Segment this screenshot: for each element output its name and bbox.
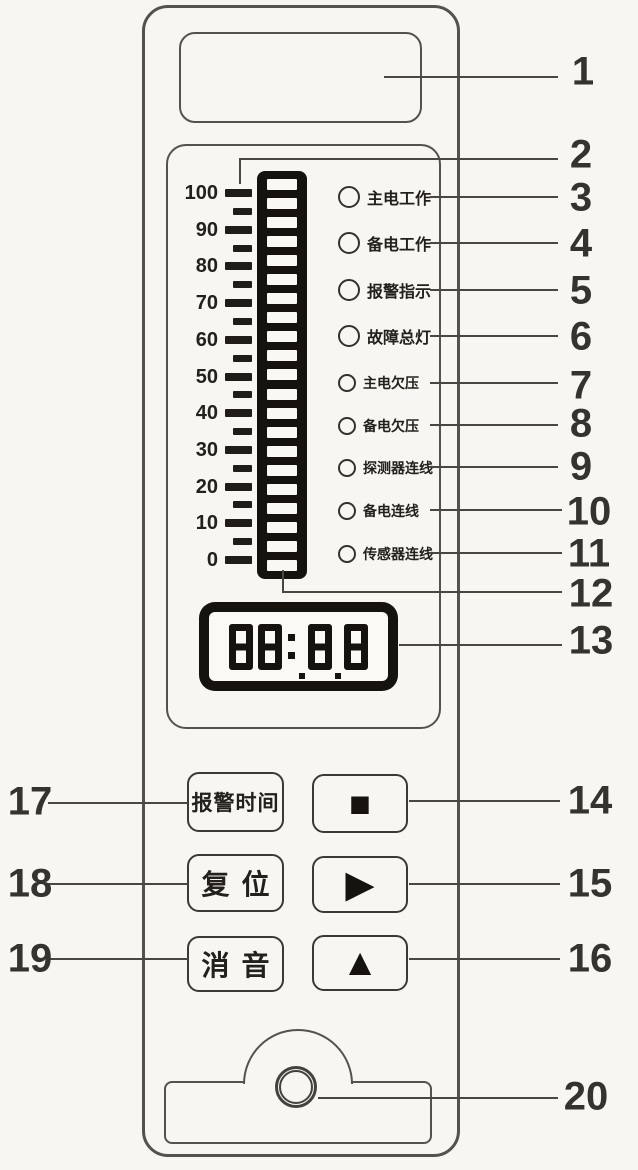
tick-major bbox=[225, 519, 252, 527]
callout-6: 6 bbox=[570, 315, 592, 360]
lamp-sensor-wiring: 传感器连线 bbox=[338, 541, 433, 567]
tick-minor bbox=[233, 501, 252, 508]
scale-label-80: 80 bbox=[170, 253, 218, 279]
tick-major bbox=[225, 409, 252, 417]
digit-8 bbox=[344, 624, 368, 670]
led-segment bbox=[267, 274, 297, 285]
led-segment bbox=[267, 389, 297, 400]
lamp-label: 主电欠压 bbox=[363, 373, 419, 393]
led-segment bbox=[267, 236, 297, 247]
tick-major bbox=[225, 446, 252, 454]
lamp-label: 故障总灯 bbox=[367, 324, 431, 348]
alarm-time-button[interactable]: 报警时间 bbox=[187, 772, 284, 832]
callout-11: 11 bbox=[568, 532, 610, 577]
colon-icon bbox=[287, 624, 296, 670]
tick-minor bbox=[233, 318, 252, 325]
lamp-circle-icon bbox=[338, 417, 356, 435]
digit-8 bbox=[308, 624, 332, 670]
scale-label-10: 10 bbox=[170, 510, 218, 536]
right-arrow-icon: ▶ bbox=[345, 862, 374, 907]
led-bargraph-segments bbox=[267, 179, 297, 571]
tick-major bbox=[225, 226, 252, 234]
lamp-circle-icon bbox=[338, 502, 356, 520]
led-segment bbox=[267, 179, 297, 190]
scale-label-60: 60 bbox=[170, 327, 218, 353]
led-segment bbox=[267, 522, 297, 533]
right-arrow-button[interactable]: ▶ bbox=[312, 856, 408, 913]
callout-13: 13 bbox=[569, 619, 614, 664]
tick-minor bbox=[233, 245, 252, 252]
up-arrow-button[interactable]: ▲ bbox=[312, 935, 408, 991]
nameplate-window bbox=[179, 32, 422, 123]
tick-minor bbox=[233, 428, 252, 435]
display-digits: 88:88 bbox=[209, 612, 388, 681]
lamp-label: 备电工作 bbox=[367, 231, 431, 255]
lamp-main-power: 主电工作 bbox=[338, 184, 431, 210]
led-segment bbox=[267, 350, 297, 361]
scale-label-20: 20 bbox=[170, 474, 218, 500]
led-segment bbox=[267, 503, 297, 514]
scale-label-40: 40 bbox=[170, 400, 218, 426]
led-segment bbox=[267, 541, 297, 552]
callout-2: 2 bbox=[570, 133, 592, 178]
callout-1: 1 bbox=[572, 50, 594, 95]
tick-minor bbox=[233, 538, 252, 545]
led-segment bbox=[267, 198, 297, 209]
lamp-circle-icon bbox=[338, 325, 360, 347]
callout-10: 10 bbox=[567, 490, 612, 535]
scale-label-90: 90 bbox=[170, 217, 218, 243]
callout-19: 19 bbox=[8, 937, 53, 982]
tick-minor bbox=[233, 355, 252, 362]
led-segment bbox=[267, 312, 297, 323]
lamp-label: 备电欠压 bbox=[363, 416, 419, 436]
lamp-circle-icon bbox=[338, 279, 360, 301]
reset-label: 复位 bbox=[201, 863, 281, 903]
lamp-circle-icon bbox=[338, 232, 360, 254]
lamp-fault: 故障总灯 bbox=[338, 323, 431, 349]
decimal-dot-icon bbox=[299, 673, 305, 679]
tick-minor bbox=[233, 208, 252, 215]
lamp-circle-icon bbox=[338, 374, 356, 392]
mute-label: 消音 bbox=[201, 944, 281, 984]
tick-minor bbox=[233, 465, 252, 472]
callout-17: 17 bbox=[8, 780, 53, 825]
seven-segment-display: 88:88 bbox=[199, 602, 398, 691]
tick-major bbox=[225, 262, 252, 270]
lamp-label: 探测器连线 bbox=[363, 458, 433, 478]
led-segment bbox=[267, 369, 297, 380]
callout-3: 3 bbox=[570, 176, 592, 221]
callout-12: 12 bbox=[569, 572, 614, 617]
callout-14: 14 bbox=[568, 779, 613, 824]
tick-major bbox=[225, 336, 252, 344]
led-bargraph bbox=[257, 171, 307, 579]
lamp-circle-icon bbox=[338, 545, 356, 563]
led-segment bbox=[267, 217, 297, 228]
scale-label-30: 30 bbox=[170, 437, 218, 463]
callout-15: 15 bbox=[568, 862, 613, 907]
tick-major bbox=[225, 189, 252, 197]
led-segment bbox=[267, 484, 297, 495]
lamp-circle-icon bbox=[338, 459, 356, 477]
callout-18: 18 bbox=[8, 862, 53, 907]
led-segment bbox=[267, 408, 297, 419]
led-segment bbox=[267, 293, 297, 304]
lamp-label: 报警指示 bbox=[367, 278, 431, 302]
led-segment bbox=[267, 465, 297, 476]
led-segment bbox=[267, 446, 297, 457]
decimal-dot-icon bbox=[335, 673, 341, 679]
panel-diagram: 1009080706050403020100 主电工作 备电工作 报警指示 故障… bbox=[0, 0, 638, 1170]
tick-minor bbox=[233, 391, 252, 398]
lamp-backup-wiring: 备电连线 bbox=[338, 498, 419, 524]
lamp-main-undervoltage: 主电欠压 bbox=[338, 370, 419, 396]
stop-square-icon: ■ bbox=[349, 783, 371, 825]
up-arrow-icon: ▲ bbox=[341, 942, 379, 985]
lamp-circle-icon bbox=[338, 186, 360, 208]
lock-keyhole bbox=[275, 1066, 317, 1108]
tick-major bbox=[225, 483, 252, 491]
lamp-backup-power: 备电工作 bbox=[338, 230, 431, 256]
alarm-time-label: 报警时间 bbox=[192, 787, 280, 817]
digit-8 bbox=[229, 624, 253, 670]
scale-label-70: 70 bbox=[170, 290, 218, 316]
stop-square-button[interactable]: ■ bbox=[312, 774, 408, 833]
lamp-label: 传感器连线 bbox=[363, 544, 433, 564]
lamp-label: 主电工作 bbox=[367, 185, 431, 209]
tick-major bbox=[225, 556, 252, 564]
tick-major bbox=[225, 299, 252, 307]
scale-label-50: 50 bbox=[170, 364, 218, 390]
led-segment bbox=[267, 255, 297, 266]
callout-9: 9 bbox=[570, 445, 592, 490]
callout-5: 5 bbox=[570, 269, 592, 314]
lamp-label: 备电连线 bbox=[363, 501, 419, 521]
display-value: 88:88 bbox=[298, 646, 299, 647]
tick-minor bbox=[233, 281, 252, 288]
lamp-backup-undervoltage: 备电欠压 bbox=[338, 413, 419, 439]
led-segment bbox=[267, 560, 297, 571]
callout-20: 20 bbox=[564, 1075, 609, 1120]
scale-label-0: 0 bbox=[170, 547, 218, 573]
lamp-alarm: 报警指示 bbox=[338, 277, 431, 303]
lamp-detector-wiring: 探测器连线 bbox=[338, 455, 433, 481]
callout-4: 4 bbox=[570, 222, 592, 267]
led-segment bbox=[267, 331, 297, 342]
reset-button[interactable]: 复位 bbox=[187, 854, 284, 912]
scale-label-100: 100 bbox=[170, 180, 218, 206]
led-segment bbox=[267, 427, 297, 438]
tick-major bbox=[225, 373, 252, 381]
callout-16: 16 bbox=[568, 937, 613, 982]
mute-button[interactable]: 消音 bbox=[187, 936, 284, 992]
digit-8 bbox=[258, 624, 282, 670]
callout-8: 8 bbox=[570, 402, 592, 447]
